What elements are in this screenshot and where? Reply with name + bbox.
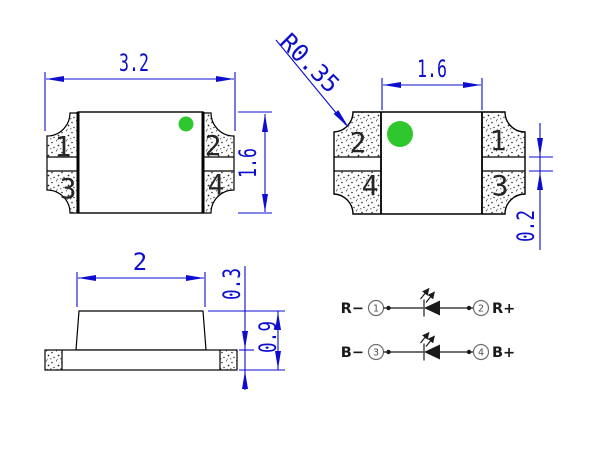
arrow-right [186,275,204,281]
light-emission-arrow [426,292,435,303]
label-b-plus: B+ [492,345,515,361]
top-view-pad-number-4: 4 [208,168,225,201]
label-r-plus: R+ [492,301,515,317]
arrow-left [383,82,401,88]
junction-dot [467,306,471,310]
arrow-right [216,76,234,82]
arrow-down [537,138,543,156]
pin-number-4: 4 [478,348,484,359]
bottom-view-pad-number-3: 3 [492,169,509,202]
top-view-width-label: 3.2 [119,49,149,77]
pin-circuit-schematic: R− 1 2 R+ B− 3 4 [341,289,516,362]
drawing-canvas: 1 2 3 4 3.2 1.6 [0,0,600,450]
polarity-marker-dot-large [387,121,413,147]
side-view: 2 0.3 0.9 [45,248,285,390]
dimension-base-0-3: 0.3 [218,266,248,390]
arrow-right [463,82,481,88]
side-pad-left [45,350,62,370]
pin-number-2: 2 [478,304,484,315]
arrow-down [262,194,268,212]
light-emission-arrow [421,289,430,300]
bottom-view: 2 1 4 3 1.6 R0.35 0.2 [274,28,553,250]
top-view-pad-number-1: 1 [55,130,72,163]
dimension-pitch-1-6: 1.6 [382,55,482,110]
bottom-view-pitch-label: 1.6 [417,55,447,83]
pin-number-1: 1 [373,304,379,315]
dimension-height-0-9: 0.9 [254,311,282,370]
light-emission-arrow [426,336,435,347]
arrow-left [78,275,96,281]
leader-arrow [334,110,349,128]
dimension-height-1-6: 1.6 [234,112,272,213]
gap-label: 0.2 [512,210,540,242]
bottom-view-pad-number-4: 4 [362,169,379,202]
arrow-down [242,331,248,349]
led-package-drawing: 1 2 3 4 3.2 1.6 [0,0,600,450]
side-view-lens [76,311,206,350]
lens-width-label: 2 [133,248,147,276]
polarity-marker-dot [179,117,194,132]
side-view-base [45,350,237,370]
label-r-minus: R− [341,301,364,317]
arrow-up [537,172,543,190]
bottom-view-pad-number-2: 2 [350,126,367,159]
arrow-up [242,371,248,389]
arrow-up [262,114,268,132]
base-thickness-label: 0.3 [218,268,246,300]
top-view-height-label: 1.6 [234,148,262,178]
top-view-pad-number-2: 2 [205,129,222,162]
light-emission-arrow [421,333,430,344]
bottom-view-pad-number-1: 1 [490,124,507,157]
side-pad-right [220,350,237,370]
pin-number-3: 3 [373,348,379,359]
junction-dot [467,350,471,354]
top-view: 1 2 3 4 3.2 1.6 [45,49,272,213]
top-view-pad-number-3: 3 [60,172,77,205]
label-b-minus: B− [341,345,364,361]
dimension-lens-width-2: 2 [77,248,205,307]
corner-radius-label: R0.35 [274,28,345,99]
dimension-corner-radius: R0.35 [274,28,349,128]
schematic-row-blue: B− 3 4 B+ [341,333,515,362]
arrow-left [46,76,64,82]
total-height-label: 0.9 [254,321,282,353]
schematic-row-red: R− 1 2 R+ [341,289,516,318]
